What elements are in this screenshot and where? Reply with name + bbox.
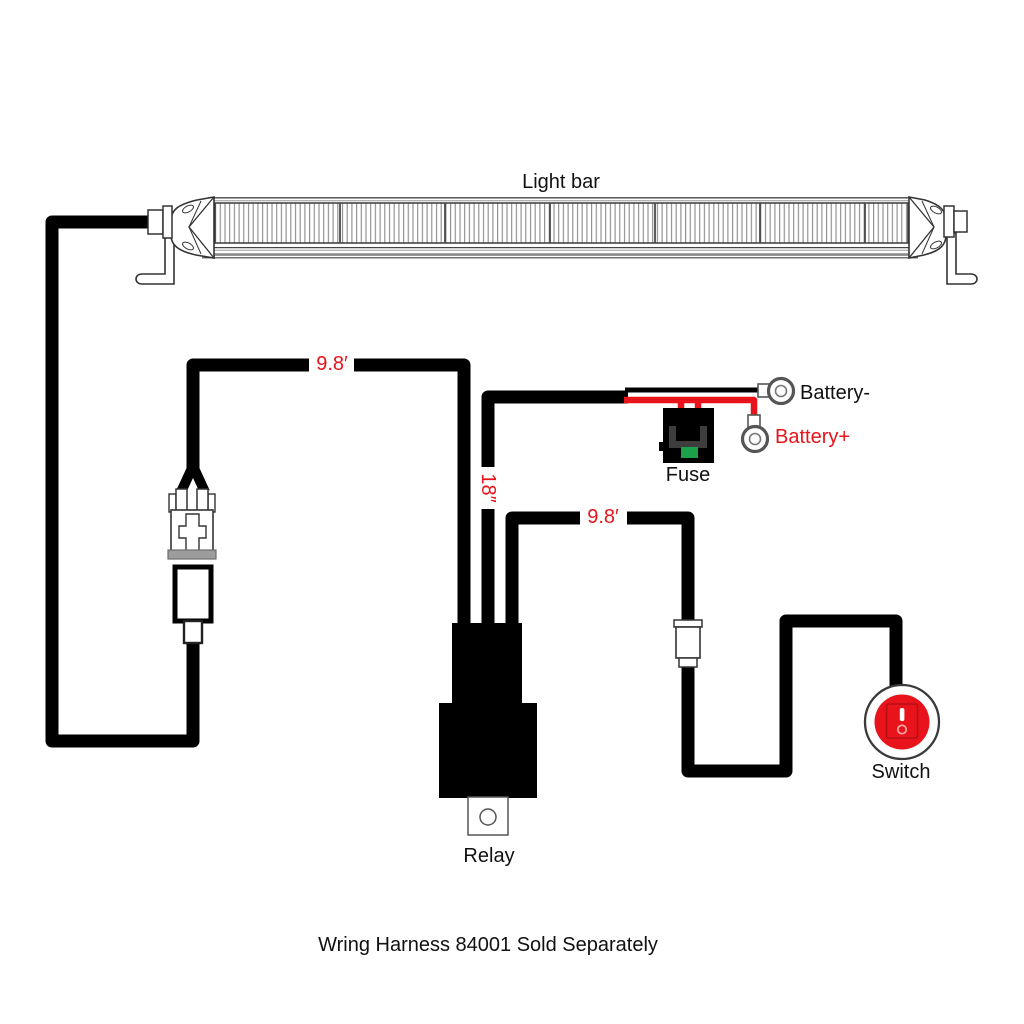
relay-label: Relay <box>463 846 514 866</box>
inline-connector <box>674 620 702 667</box>
footer-note: Wring Harness 84001 Sold Separately <box>318 935 658 955</box>
diagram-canvas <box>0 0 1024 1024</box>
wire-length-label-2: 9.8′ <box>587 507 619 527</box>
right-bracket <box>947 233 977 284</box>
fuse-label: Fuse <box>666 465 710 485</box>
light-bar <box>136 197 977 284</box>
switch-wire-upper <box>512 518 688 630</box>
relay <box>439 623 537 835</box>
fuse-holder <box>659 408 714 463</box>
light-bar-title: Light bar <box>522 172 600 192</box>
two-pin-connector-male <box>168 489 216 559</box>
cable-gland <box>148 206 172 238</box>
switch-icon <box>865 685 939 759</box>
adjuster-bolt <box>944 206 967 237</box>
left-bracket <box>136 233 174 284</box>
left-end-cap <box>171 197 214 258</box>
wiring-diagram: Light bar 9.8′ 18″ 9.8′ Fuse Battery- Ba… <box>0 0 1024 1024</box>
wire-length-label-18: 18″ <box>478 473 498 502</box>
battery-positive-label: Battery+ <box>775 427 850 447</box>
battery-negative-terminal <box>758 379 794 404</box>
lightbar-wire <box>52 222 193 741</box>
fork-leg-right <box>193 466 205 492</box>
wire-length-label-1: 9.8′ <box>316 354 348 374</box>
fuse-element <box>681 447 698 458</box>
switch-label: Switch <box>872 762 931 782</box>
relay-feed-wire <box>193 365 464 628</box>
lightbar-lens <box>215 203 908 243</box>
relay-mount-hole <box>480 809 496 825</box>
right-end-cap <box>909 197 946 258</box>
two-pin-connector-female <box>175 567 211 643</box>
battery-positive-terminal <box>743 415 768 452</box>
switch-wire-lower <box>688 621 896 771</box>
battery-negative-label: Battery- <box>800 383 870 403</box>
connector-seal <box>168 550 216 559</box>
rocker-on-mark <box>900 708 905 721</box>
